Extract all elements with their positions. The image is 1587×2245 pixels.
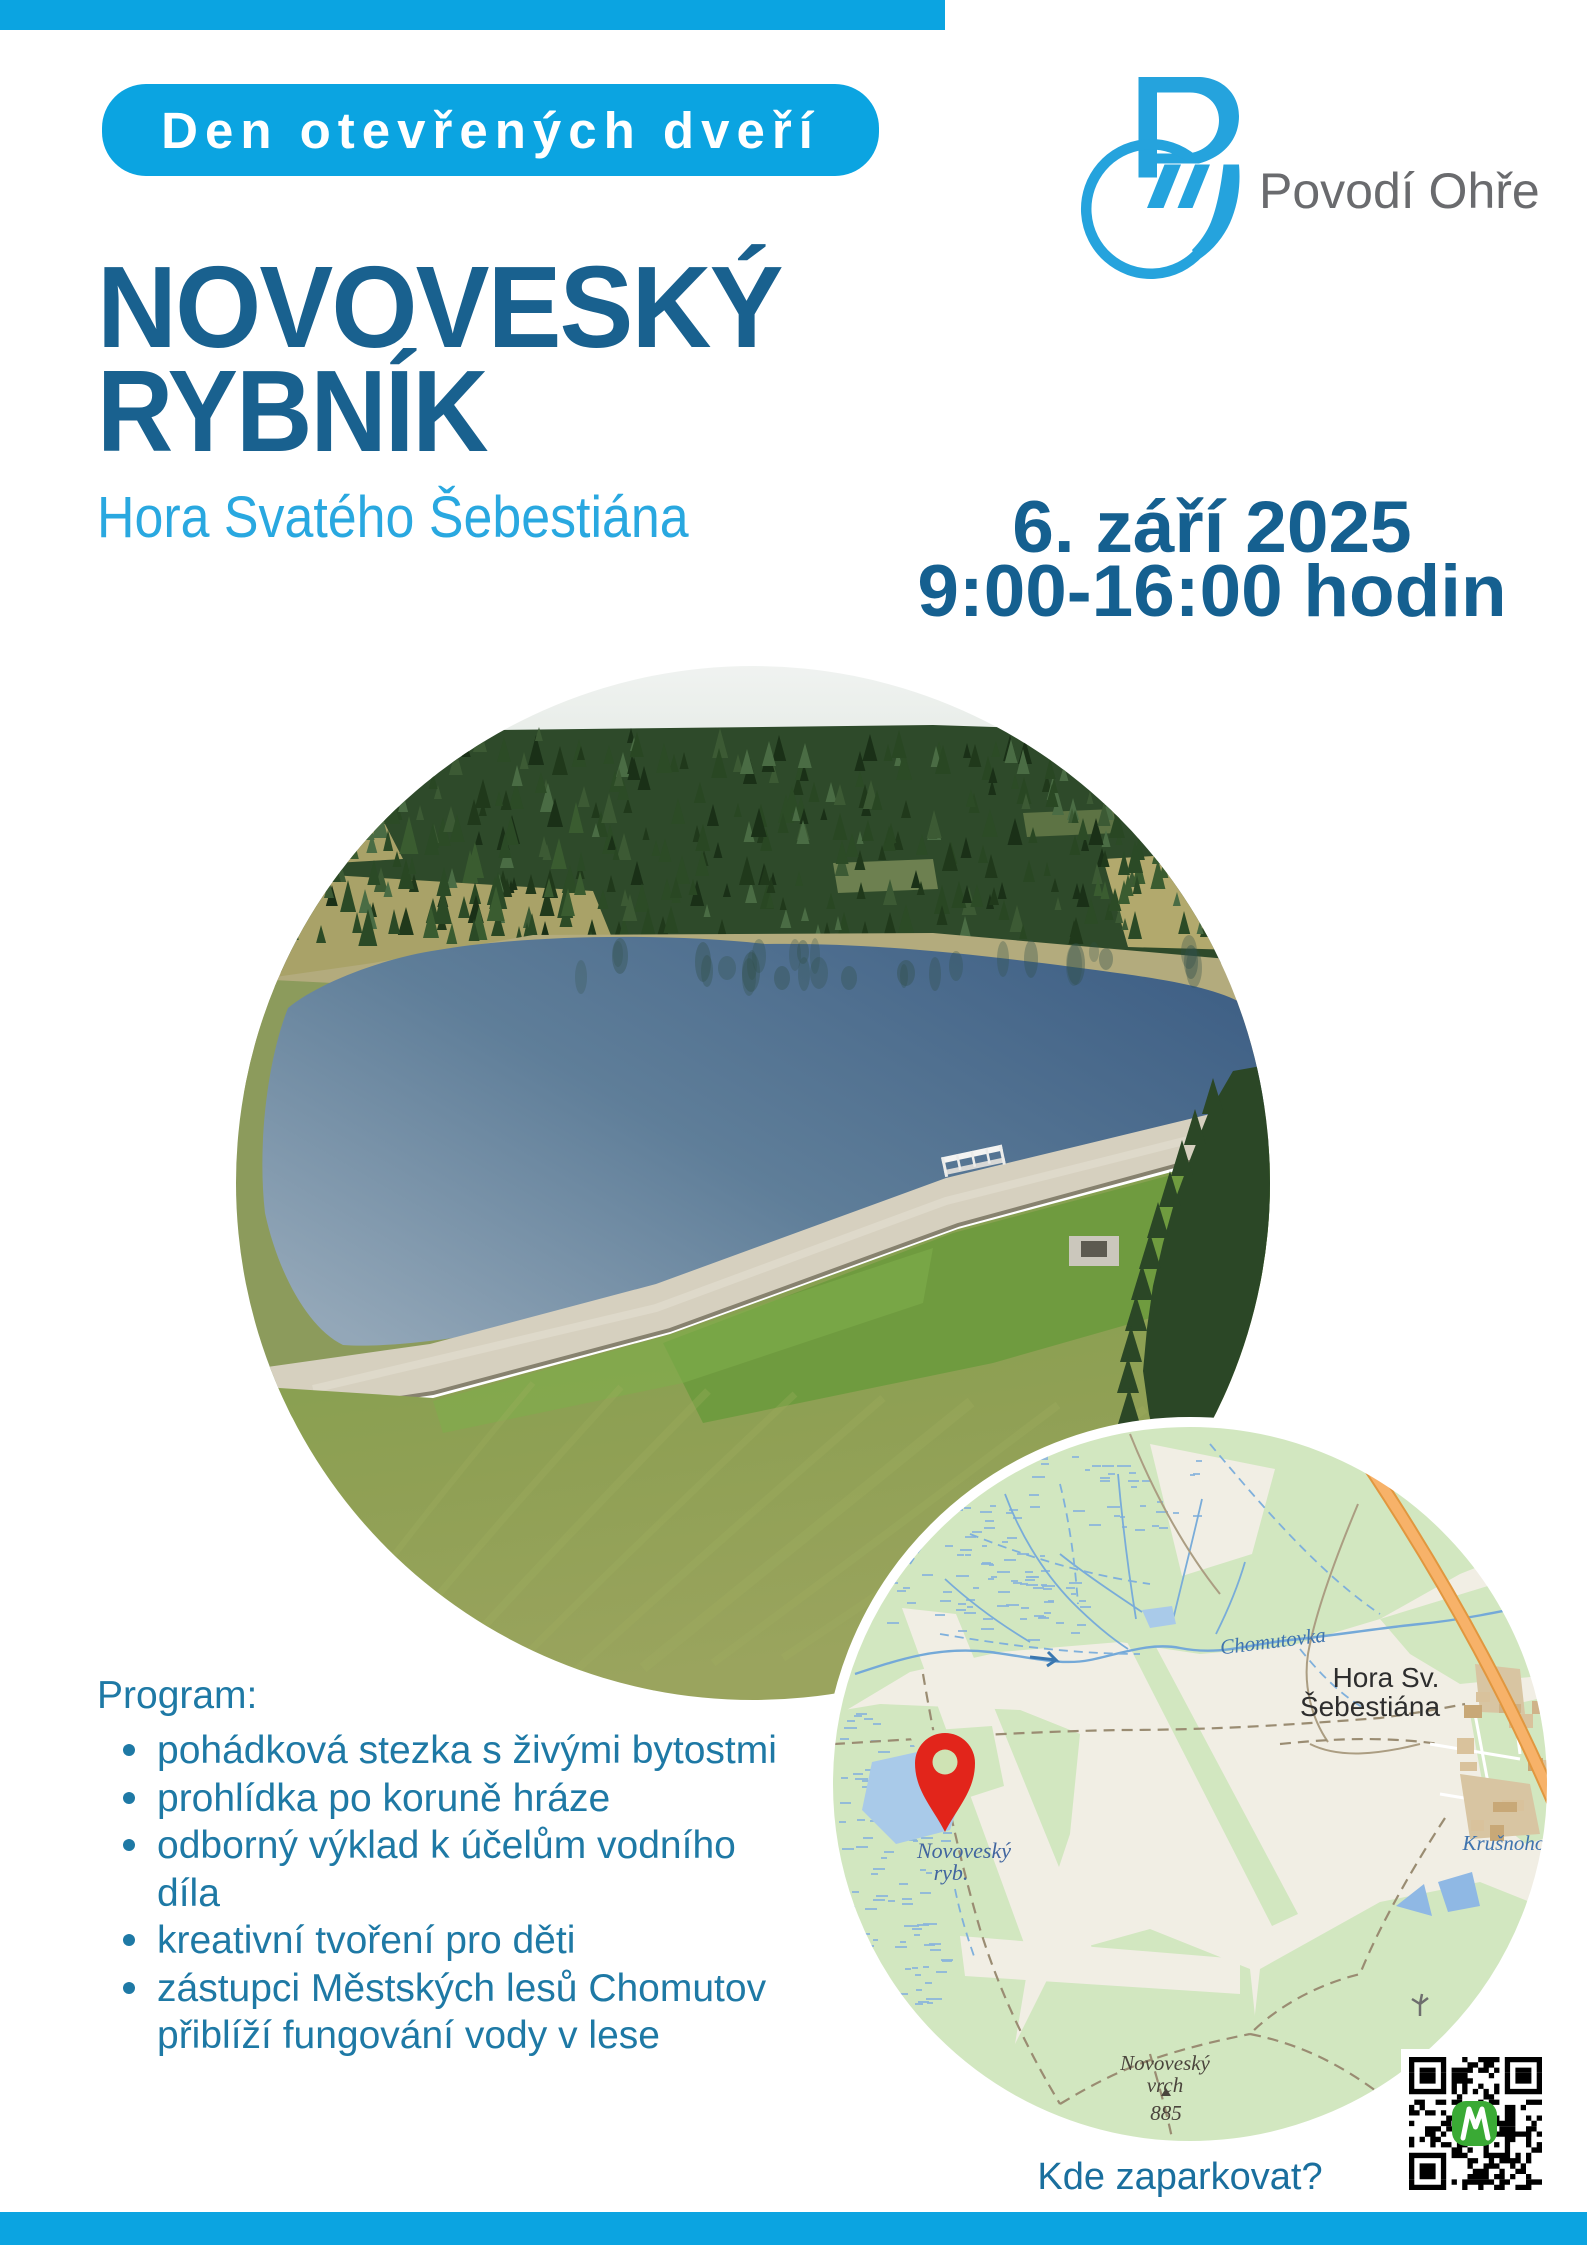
svg-text:Hora Sv.: Hora Sv. [1333,1662,1440,1693]
svg-text:Šebestiána: Šebestiána [1300,1691,1441,1722]
svg-text:Novoveský: Novoveský [1119,2051,1210,2075]
svg-text:ryb.: ryb. [934,1860,969,1885]
svg-text:885: 885 [1150,2101,1182,2125]
svg-text:Krušnohor: Krušnohor [1461,1831,1554,1855]
